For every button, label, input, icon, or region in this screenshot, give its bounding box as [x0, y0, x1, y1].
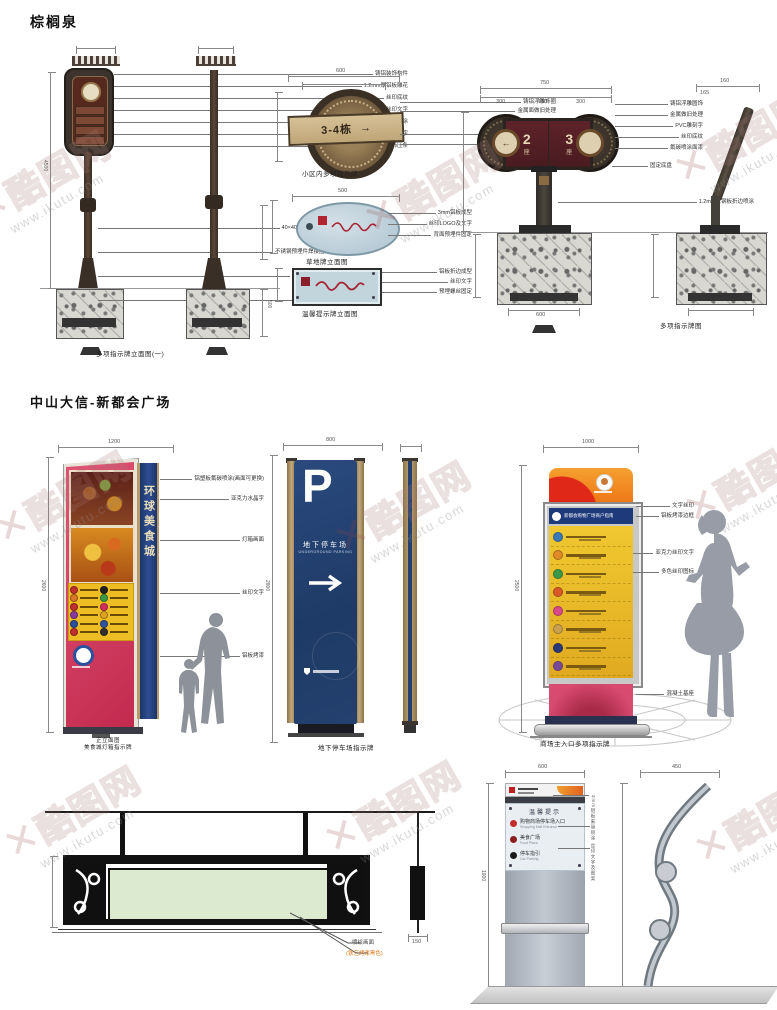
- header-swoosh: [557, 786, 583, 795]
- dim-line: [262, 205, 263, 260]
- dim-label: 150: [538, 99, 547, 105]
- sign-band: [75, 126, 105, 135]
- ceiling-line: [45, 811, 435, 813]
- totem-base: [298, 724, 354, 733]
- arrow-medallion-right: [576, 129, 604, 157]
- anchor-foot: [532, 325, 556, 333]
- row-text-bar: [566, 591, 606, 594]
- dim-line: [505, 772, 585, 773]
- tenant-icon: [100, 603, 108, 611]
- kiosk-silver-band: [501, 923, 589, 934]
- script-text-graphic: [330, 218, 378, 232]
- arrow-medallion-left: ←: [492, 129, 520, 157]
- directory-row: [551, 547, 631, 566]
- anchor-bracket: [688, 293, 752, 301]
- callout: 亚克力水晶字: [160, 495, 264, 503]
- totem-base: [545, 716, 637, 724]
- side-blade: 环球美食城: [140, 463, 157, 719]
- tenant-icon: [70, 594, 78, 602]
- base-plate: [288, 733, 364, 737]
- dim-line: [640, 772, 720, 773]
- tenant-text-bar: [110, 623, 128, 625]
- tenant-text-bar: [110, 631, 128, 633]
- row-text-bar: [566, 665, 606, 668]
- sign-band: [75, 136, 105, 145]
- dim-line: [262, 289, 263, 337]
- dim-line: [48, 457, 49, 733]
- kiosk-rows: 购物商场停车场入口Shopping Mall Entrance 美食广场Food…: [510, 819, 565, 867]
- post-finial: [72, 56, 120, 66]
- directory-row: [551, 621, 631, 640]
- row-text: 美食广场Food Plaza: [520, 835, 540, 845]
- spec-note-vertical: 3mm铝板氟碳喷涂 丝印文字及图案: [590, 795, 596, 925]
- row-text-bar: [579, 539, 601, 541]
- adult-child-silhouette: [176, 612, 234, 738]
- leader-line: [553, 795, 589, 796]
- tenant-text-bar: [110, 597, 128, 599]
- row-text-bar: [566, 554, 606, 557]
- category-icon: [553, 550, 563, 560]
- medallion-band: 3-4栋 →: [288, 112, 405, 146]
- logo-text-bar: [594, 491, 612, 493]
- screw-icon: [372, 296, 375, 299]
- tenant-item: [70, 620, 100, 628]
- directory-row: [551, 584, 631, 603]
- tenant-item: [70, 594, 100, 602]
- tenant-text-bar: [110, 614, 128, 616]
- drawing-caption: 草地牌立面图: [306, 256, 348, 266]
- directory-row: [551, 639, 631, 658]
- dim-line: [488, 783, 489, 993]
- dim-label: 1900: [480, 870, 486, 881]
- dim-label: 4500: [42, 160, 48, 171]
- category-icon: [553, 532, 563, 542]
- pole-collar: [80, 198, 96, 212]
- category-icon: [553, 661, 563, 671]
- totem-top-cap: [549, 468, 633, 502]
- pole: [210, 70, 218, 258]
- row-text-bar: [579, 576, 601, 578]
- category-icon: [553, 587, 563, 597]
- base-platform: [534, 724, 650, 736]
- tenant-item: [100, 611, 130, 619]
- tenant-icon: [70, 586, 78, 594]
- row-text-bar: [566, 647, 606, 650]
- callout-list: 铸铝浮雕圆饰金属做旧处理PVC雕刻字丝印底纹氟碳喷涂面漆: [615, 100, 703, 152]
- drawing-caption: 温馨提示牌立面图: [302, 308, 358, 318]
- leader-line: [558, 848, 590, 849]
- row-icon: [510, 836, 517, 843]
- pole-base-flare: [78, 258, 98, 289]
- anchor-foot: [206, 347, 228, 355]
- plate-logo: [318, 216, 327, 225]
- dim-label: 1000: [582, 439, 594, 445]
- dim-line: [50, 72, 51, 289]
- food-photo-2: [69, 526, 135, 584]
- kiosk-row: 美食广场Food Plaza: [510, 835, 565, 851]
- tenant-icon: [70, 620, 78, 628]
- anchor-bracket: [192, 318, 242, 327]
- arrow-icon: →: [360, 122, 371, 134]
- screw-icon: [296, 272, 299, 275]
- hanger-post: [303, 813, 308, 856]
- side-view-base: [404, 725, 416, 733]
- row-text-bar: [579, 613, 601, 615]
- category-icon: [553, 606, 563, 616]
- drawing-caption: 商场主入口多项指示牌: [540, 738, 610, 748]
- tenant-text-bar: [80, 614, 98, 616]
- dim-label: 2500: [513, 580, 519, 591]
- post-plaque: [539, 176, 549, 185]
- right-arrow-icon: [306, 574, 346, 592]
- sign-band: [75, 106, 105, 115]
- screw-icon: [578, 864, 581, 867]
- totem-lower: [549, 684, 633, 716]
- directory-header-text: 新都会购物广场商户指南: [564, 513, 614, 519]
- dim-label: 500: [338, 188, 347, 194]
- parking-p-letter: P: [302, 463, 333, 509]
- dim-line: [688, 310, 754, 311]
- callout-list: 铝板折边成型丝印文字预埋螺丝固定: [382, 268, 472, 296]
- callout: 丝印文字: [160, 589, 264, 597]
- dim-line: [283, 445, 383, 446]
- callout: 3mm铝板成型: [388, 209, 472, 217]
- dim-label: 450: [672, 764, 681, 770]
- kiosk-lower-panel: [505, 934, 585, 986]
- tenant-item: [100, 594, 130, 602]
- side-view-stripe: [408, 461, 412, 723]
- callout: PVC雕刻字: [615, 122, 703, 130]
- section2-title: 中山大信-新都会广场: [30, 392, 171, 411]
- anchor-bracket: [510, 293, 578, 301]
- dim-line: [543, 447, 639, 448]
- dim-line: [272, 455, 273, 743]
- dim-label: 2800: [264, 580, 270, 591]
- scroll-ornament-icon: [68, 864, 106, 920]
- dim-label: 150: [412, 939, 421, 945]
- row-icon: [510, 852, 517, 859]
- tenant-text-bar: [80, 631, 98, 633]
- building-label: 3-4栋: [321, 121, 352, 138]
- row-text: 停车指引Car Parking: [520, 851, 540, 861]
- callout: 背面预埋件固定: [388, 231, 472, 239]
- tenant-item: [70, 586, 100, 594]
- row-text-bar: [579, 668, 601, 670]
- tenant-item: [100, 628, 130, 636]
- tenant-icon: [100, 628, 108, 636]
- screw-icon: [296, 296, 299, 299]
- dim-label: 165: [700, 90, 709, 96]
- dim-line: [400, 446, 422, 447]
- dim-label: 160: [720, 78, 729, 84]
- tenant-icon: [100, 620, 108, 628]
- callout: 预埋螺丝固定: [382, 288, 472, 296]
- screw-icon: [372, 272, 375, 275]
- tenant-icon: [100, 611, 108, 619]
- row-text: 购物商场停车场入口Shopping Mall Entrance: [520, 819, 565, 829]
- callout: 金属面做旧处理: [400, 107, 556, 115]
- callout-label: 喷绘画面: [352, 938, 374, 946]
- header-text-bar: [518, 792, 534, 794]
- callout: 金属做旧处理: [615, 111, 703, 119]
- base-plate: [700, 225, 740, 234]
- plate-logo: [301, 277, 310, 286]
- dim-line: [480, 88, 612, 89]
- logo-mark: [509, 787, 515, 793]
- drawing-caption: 地下停车场指示牌: [318, 742, 374, 752]
- pole-collar: [205, 195, 223, 209]
- dim-line: [277, 268, 278, 302]
- kiosk-panel-title: 温馨提示: [505, 807, 585, 816]
- hanger-post: [120, 813, 125, 856]
- brand-logo: [73, 645, 94, 666]
- blade-sign: [711, 106, 754, 202]
- tenant-icon: [70, 603, 78, 611]
- drawing-caption: 美食城灯箱指示牌: [84, 743, 132, 751]
- tenant-icon: [100, 594, 108, 602]
- scroll-panel-left: [68, 864, 106, 920]
- dim-line: [508, 310, 580, 311]
- parking-cn-label: 地下停车场: [294, 540, 357, 550]
- design-sheet: 棕榈泉 4500 铸铝装饰构件1.2mm厚铝板雕花丝印底纹丝印文字3mm铝板氟碳…: [0, 0, 777, 1010]
- tenant-item: [100, 586, 130, 594]
- dim-label: 600: [536, 312, 545, 318]
- dim-line: [76, 48, 116, 49]
- callout: 丝印文字: [382, 278, 472, 286]
- dim-label: 600: [538, 764, 547, 770]
- callout: 铸铝浮雕圆饰: [615, 100, 703, 108]
- sign-band: [75, 116, 105, 125]
- anchor-bracket: [62, 318, 116, 327]
- logo-text-bar: [313, 670, 339, 673]
- dim-label: 750: [540, 80, 549, 86]
- dim-label: 300: [496, 99, 505, 105]
- directory-row: [551, 658, 631, 677]
- dim-label: 600: [336, 68, 345, 74]
- callout-label-orange: (铁艺烤漆黑色): [346, 949, 383, 957]
- callout: 丝印底纹: [615, 133, 703, 141]
- callout: 1.2mm厚钢板折边喷涂: [558, 198, 754, 206]
- panel-watermark-circle: [312, 632, 360, 680]
- dim-line: [272, 200, 273, 254]
- sign-head-medallion: [81, 82, 101, 102]
- tenant-icon: [100, 586, 108, 594]
- tenant-grid: [70, 586, 130, 636]
- row-icon: [510, 820, 517, 827]
- food-photo-1: [69, 470, 135, 527]
- tenant-text-bar: [110, 589, 128, 591]
- dim-line: [475, 234, 476, 298]
- callout: 固定底盘: [612, 162, 672, 170]
- row-text-bar: [579, 594, 601, 596]
- callout: 氟碳喷涂面漆: [615, 144, 703, 152]
- woman-silhouette: [678, 505, 762, 737]
- dim-label: 800: [326, 437, 335, 443]
- callout-list: 3mm铝板成型丝印LOGO及文字背面预埋件固定: [388, 209, 472, 239]
- row-text-bar: [566, 628, 606, 631]
- tenant-icon: [70, 628, 78, 636]
- directory-rows: [551, 528, 631, 676]
- directory-row: [551, 602, 631, 621]
- side-rail: [157, 463, 159, 719]
- tenant-text-bar: [80, 606, 98, 608]
- kiosk-mid-panel: [505, 871, 585, 923]
- tenant-text-bar: [110, 606, 128, 608]
- category-icon: [553, 643, 563, 653]
- dim-line: [521, 465, 522, 733]
- tenant-text-bar: [80, 623, 98, 625]
- dim-line: [288, 76, 400, 77]
- row-text-bar: [579, 631, 601, 633]
- dim-line: [653, 234, 654, 298]
- section1-title: 棕榈泉: [30, 12, 78, 32]
- dim-line: [58, 447, 174, 448]
- callout: 丝印LOGO及文字: [388, 220, 472, 228]
- dim-label: 2600: [40, 580, 46, 591]
- directory-row: [551, 528, 631, 547]
- tenant-text-bar: [80, 589, 98, 591]
- directory-row: [551, 565, 631, 584]
- callout: 铝塑板氟碳喷涂(画面可更换): [160, 475, 264, 483]
- kiosk-side-scurve: [630, 780, 730, 995]
- dim-line: [408, 936, 428, 937]
- side-view-block: [410, 866, 425, 920]
- side-blade-text: 环球美食城: [141, 485, 157, 560]
- row-text-bar: [579, 650, 601, 652]
- tenant-item: [100, 603, 130, 611]
- tenant-text-bar: [80, 597, 98, 599]
- tenant-item: [70, 611, 100, 619]
- kiosk-row: 停车指引Car Parking: [510, 851, 565, 867]
- callout: 铝板折边成型: [382, 268, 472, 276]
- plate-emblem: [306, 223, 313, 230]
- totem-base: [63, 727, 143, 734]
- dim-line: [292, 196, 400, 197]
- callout: 灯箱画面: [160, 536, 264, 544]
- brand-text-bar: [72, 666, 90, 668]
- tenant-item: [70, 603, 100, 611]
- callout: 铸铝浮雕饰圈: [400, 98, 556, 106]
- dim-label: 300: [576, 99, 585, 105]
- dim-line: [622, 783, 623, 993]
- header-text-bar: [518, 788, 538, 790]
- dim-line: [277, 92, 278, 162]
- post-finial: [196, 56, 236, 66]
- drawing-caption: 多项指示牌图: [660, 320, 702, 330]
- row-text-bar: [566, 573, 606, 576]
- category-icon: [553, 624, 563, 634]
- drawing-caption: 多项指示牌立面图(一): [96, 348, 164, 358]
- foundation: [186, 289, 250, 339]
- category-icon: [553, 569, 563, 579]
- mascot-face: [601, 478, 608, 485]
- row-text-bar: [566, 610, 606, 613]
- dim-line: [52, 856, 53, 928]
- dim-line: [302, 84, 386, 85]
- script-text-graphic: [314, 277, 366, 291]
- leader-line: [558, 826, 590, 827]
- header-logo-icon: [552, 512, 561, 521]
- mascot-logo: [596, 474, 613, 491]
- row-text-bar: [579, 557, 601, 559]
- dim-line: [696, 86, 760, 87]
- drawing-caption: 小区内多项指示牌: [302, 168, 358, 178]
- tenant-item: [70, 628, 100, 636]
- dim-label: 500: [266, 300, 272, 308]
- row-text-bar: [566, 536, 606, 539]
- callout-list: 铸铝浮雕饰圈金属面做旧处理: [400, 98, 556, 115]
- dim-line: [480, 97, 612, 98]
- parking-en-label: UNDERGROUND PARKING: [294, 550, 357, 554]
- tenant-icon: [70, 611, 78, 619]
- floor-slab: [470, 986, 777, 1004]
- kiosk-row: 购物商场停车场入口Shopping Mall Entrance: [510, 819, 565, 835]
- dim-label: 1200: [108, 439, 120, 445]
- tenant-item: [100, 620, 130, 628]
- directory-header: 新都会购物广场商户指南: [549, 508, 633, 524]
- dim-line: [463, 112, 464, 232]
- dim-line: [198, 48, 234, 49]
